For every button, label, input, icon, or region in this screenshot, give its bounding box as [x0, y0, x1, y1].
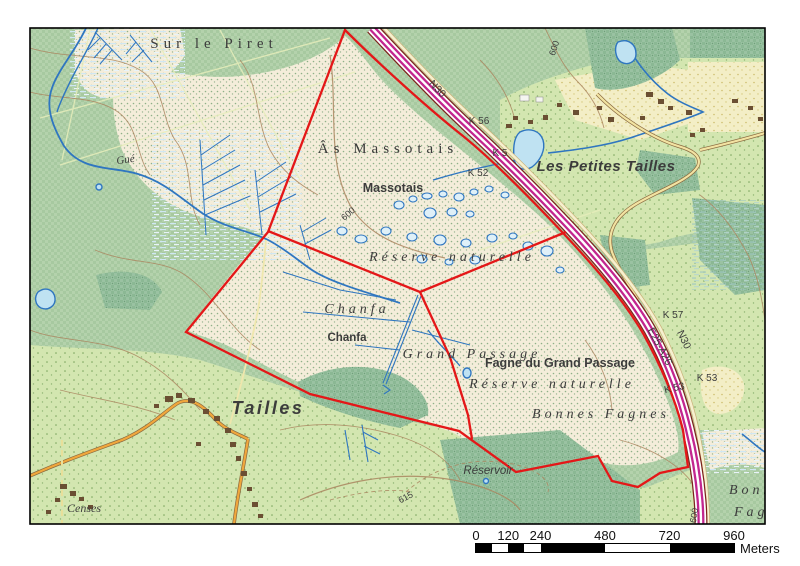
map-label-censes: Censes [67, 501, 101, 515]
map-label-bonnes-clipped: Bonnes [729, 483, 794, 498]
map-canvas[interactable]: Sur le PiretÂs MassotaisRéserve naturell… [0, 0, 800, 566]
map-label-as-massotais: Âs Massotais [318, 140, 458, 157]
map-label-k57-marker: K 57 [663, 310, 684, 321]
map-label-tailles: Tailles [232, 398, 305, 418]
map-label-fagnes-clipped: Fagnes [733, 505, 799, 520]
map-label-les-petites-tailles: Les Petites Tailles [536, 158, 675, 175]
map-label-sur-le-piret: Sur le Piret [150, 36, 278, 52]
map-export: Sur le PiretÂs MassotaisRéserve naturell… [0, 0, 800, 566]
map-label-k52-marker: K 52 [468, 168, 489, 179]
map-label-reserve-naturelle-south: Réserve naturelle [468, 377, 635, 392]
map-label-fagne-du-grand-passage-red: Fagne du Grand Passage [485, 356, 635, 370]
map-label-massotais-red: Massotais [363, 181, 423, 195]
map-label-k53-marker-east: K 53 [697, 373, 718, 384]
map-label-reserve-naturelle-north: Réserve naturelle [368, 250, 535, 265]
map-label-chanfa-red: Chanfa [328, 332, 368, 344]
map-label-reservoir: Réservoir [463, 465, 513, 477]
map-label-k56-marker: K 56 [469, 116, 490, 127]
map-label-chanfa-toponym: Chanfa [324, 302, 389, 317]
map-label-bonnes-fagnes: Bonnes Fagnes [532, 407, 670, 422]
map-label-k5-marker: K 5 [492, 148, 507, 159]
